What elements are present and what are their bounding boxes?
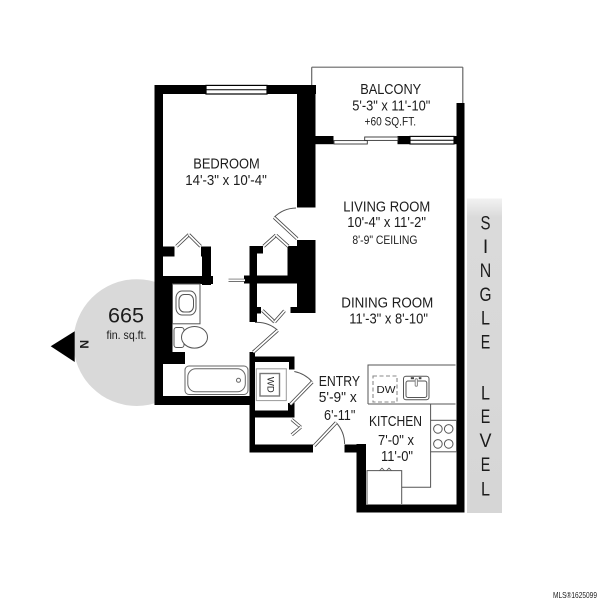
svg-text:I: I <box>483 237 488 258</box>
svg-text:BEDROOM: BEDROOM <box>193 156 260 173</box>
svg-text:5'-3" x 11'-10": 5'-3" x 11'-10" <box>352 98 430 115</box>
svg-text:N: N <box>480 261 492 282</box>
svg-text:N: N <box>78 340 92 349</box>
svg-text:L: L <box>481 383 490 404</box>
svg-text:14'-3" x 10'-4": 14'-3" x 10'-4" <box>185 172 267 189</box>
svg-text:WD: WD <box>264 377 275 393</box>
svg-text:BALCONY: BALCONY <box>360 81 421 98</box>
svg-text:E: E <box>481 407 491 428</box>
svg-text:8'-9" CEILING: 8'-9" CEILING <box>352 233 417 247</box>
svg-text:L: L <box>481 308 490 329</box>
svg-text:ENTRY: ENTRY <box>319 373 360 390</box>
svg-text:MLS®1625099: MLS®1625099 <box>553 590 597 600</box>
svg-text:6'-11": 6'-11" <box>324 407 355 424</box>
svg-text:S: S <box>481 214 491 235</box>
svg-text:5'-9" x: 5'-9" x <box>319 389 357 406</box>
svg-text:LIVING ROOM: LIVING ROOM <box>343 198 430 215</box>
svg-text:L: L <box>481 480 490 501</box>
svg-text:fin. sq.ft.: fin. sq.ft. <box>107 328 147 342</box>
svg-text:11'-3" x 8'-10": 11'-3" x 8'-10" <box>349 311 428 328</box>
svg-text:V: V <box>480 431 492 452</box>
svg-text:DINING ROOM: DINING ROOM <box>341 295 433 312</box>
svg-text:DW: DW <box>377 384 396 396</box>
svg-text:E: E <box>481 455 491 476</box>
svg-text:KITCHEN: KITCHEN <box>369 413 422 430</box>
svg-text:665: 665 <box>108 304 144 327</box>
svg-text:E: E <box>481 332 491 353</box>
svg-text:10'-4" x 11'-2": 10'-4" x 11'-2" <box>347 214 426 231</box>
svg-text:+60 SQ.FT.: +60 SQ.FT. <box>365 115 417 129</box>
svg-text:11'-0": 11'-0" <box>381 448 413 465</box>
svg-text:G: G <box>480 285 492 306</box>
svg-text:7'-0" x: 7'-0" x <box>378 432 414 449</box>
